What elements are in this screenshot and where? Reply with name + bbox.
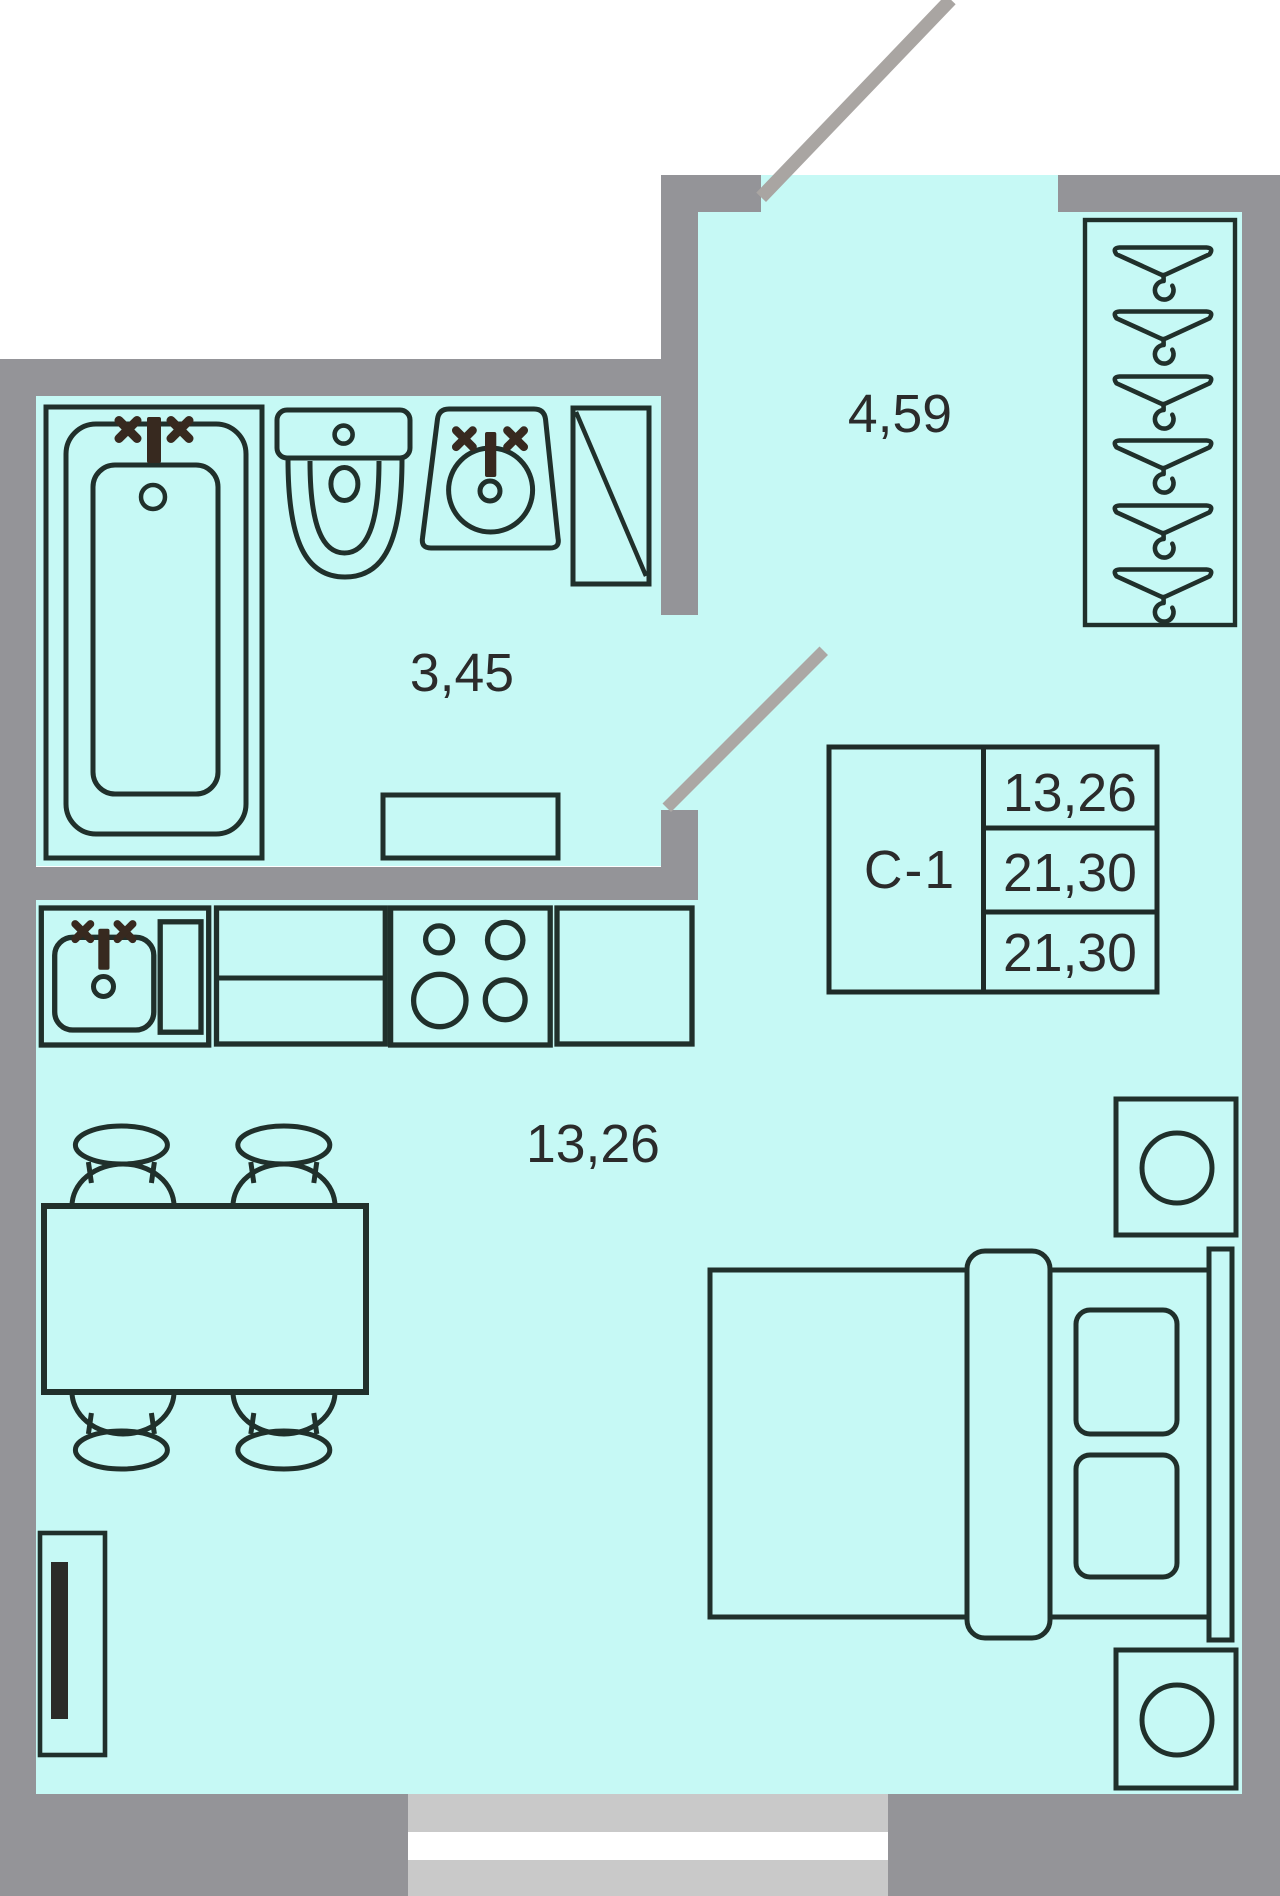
svg-text:21,30: 21,30: [1003, 844, 1137, 903]
svg-text:21,30: 21,30: [1003, 924, 1137, 983]
svg-text:4,59: 4,59: [848, 385, 952, 444]
svg-text:3,45: 3,45: [410, 644, 514, 703]
svg-text:С-1: С-1: [864, 841, 956, 900]
svg-text:13,26: 13,26: [526, 1115, 660, 1174]
svg-text:13,26: 13,26: [1003, 764, 1137, 823]
